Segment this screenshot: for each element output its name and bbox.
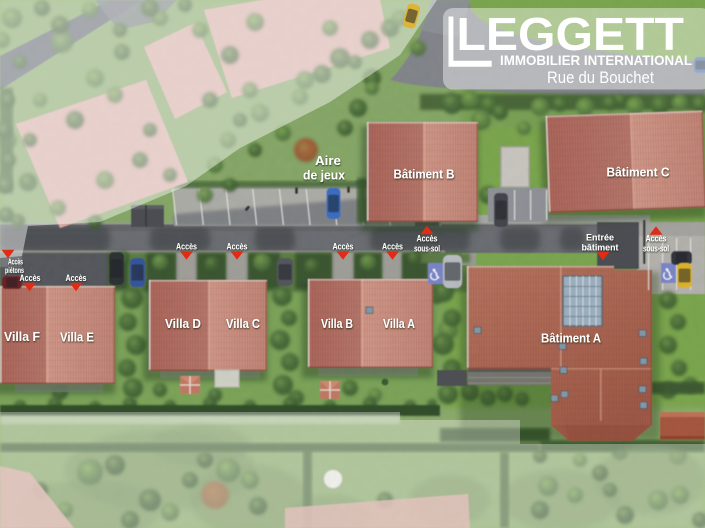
svg-text:IMMOBILIER INTERNATIONAL: IMMOBILIER INTERNATIONAL	[500, 53, 692, 69]
svg-text:Villa A: Villa A	[383, 316, 415, 331]
svg-text:Villa B: Villa B	[321, 316, 353, 331]
svg-text:Accès: Accès	[333, 242, 354, 253]
svg-text:Bâtiment A: Bâtiment A	[541, 331, 602, 346]
svg-text:Accès: Accès	[176, 242, 197, 253]
svg-text:Aire: Aire	[315, 154, 341, 168]
svg-text:Villa E: Villa E	[60, 330, 94, 345]
svg-text:sous-sol: sous-sol	[414, 244, 440, 255]
svg-text:Rue du Bouchet: Rue du Bouchet	[547, 69, 654, 87]
svg-text:Accès: Accès	[382, 242, 403, 253]
svg-text:Villa F: Villa F	[4, 329, 40, 344]
svg-text:Bâtiment B: Bâtiment B	[394, 167, 455, 182]
svg-text:Accès: Accès	[66, 273, 87, 284]
svg-text:sous-sol: sous-sol	[643, 244, 669, 255]
svg-text:Accès: Accès	[227, 242, 248, 253]
svg-text:Villa C: Villa C	[226, 316, 261, 331]
svg-text:Villa D: Villa D	[165, 316, 201, 331]
svg-text:Bâtiment C: Bâtiment C	[607, 165, 671, 180]
svg-text:de jeux: de jeux	[303, 169, 345, 183]
svg-text:piétons: piétons	[5, 266, 24, 275]
